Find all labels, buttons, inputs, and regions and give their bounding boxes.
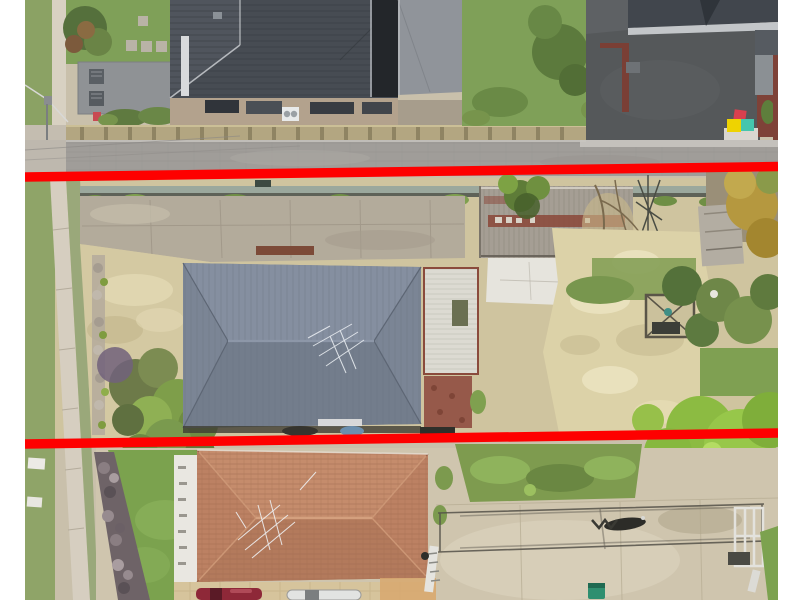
white-garage xyxy=(424,268,478,374)
window xyxy=(310,102,354,114)
charcoal-roof-house xyxy=(170,0,398,98)
side-roof xyxy=(398,0,462,95)
yellow-bin xyxy=(727,119,741,132)
ac-unit xyxy=(282,107,299,121)
aerial-photo-canvas xyxy=(0,0,800,600)
rusty-planter xyxy=(256,246,314,255)
maroon-car xyxy=(196,588,262,600)
stone-pillar xyxy=(755,55,773,95)
white-car xyxy=(287,590,361,600)
chimney xyxy=(181,36,189,96)
white-gutter-box xyxy=(318,419,362,427)
subject-house-roof xyxy=(183,263,421,436)
flat-roof-garage xyxy=(78,62,172,114)
terrace-strip xyxy=(170,98,398,125)
verge-grass xyxy=(25,0,55,142)
teal-bin xyxy=(741,119,754,131)
window xyxy=(246,101,282,114)
photo-margin-right xyxy=(778,0,800,600)
street-retaining-wall xyxy=(66,125,586,142)
top-neighbor-property xyxy=(25,0,778,180)
tree-shadow xyxy=(658,506,742,534)
white-side-path xyxy=(174,455,197,585)
window xyxy=(205,100,239,113)
verge-grass xyxy=(25,178,55,600)
aerial-photo xyxy=(0,0,800,600)
crossover-apron xyxy=(580,140,778,147)
dark-box xyxy=(728,552,750,565)
entry-path xyxy=(52,0,66,130)
garage-vent xyxy=(452,300,468,326)
photo-margin-left xyxy=(0,0,25,600)
window xyxy=(362,102,392,114)
solar-panels xyxy=(372,0,398,97)
rear-neighbor-property xyxy=(27,444,778,600)
terracotta-roof-house xyxy=(197,450,428,582)
